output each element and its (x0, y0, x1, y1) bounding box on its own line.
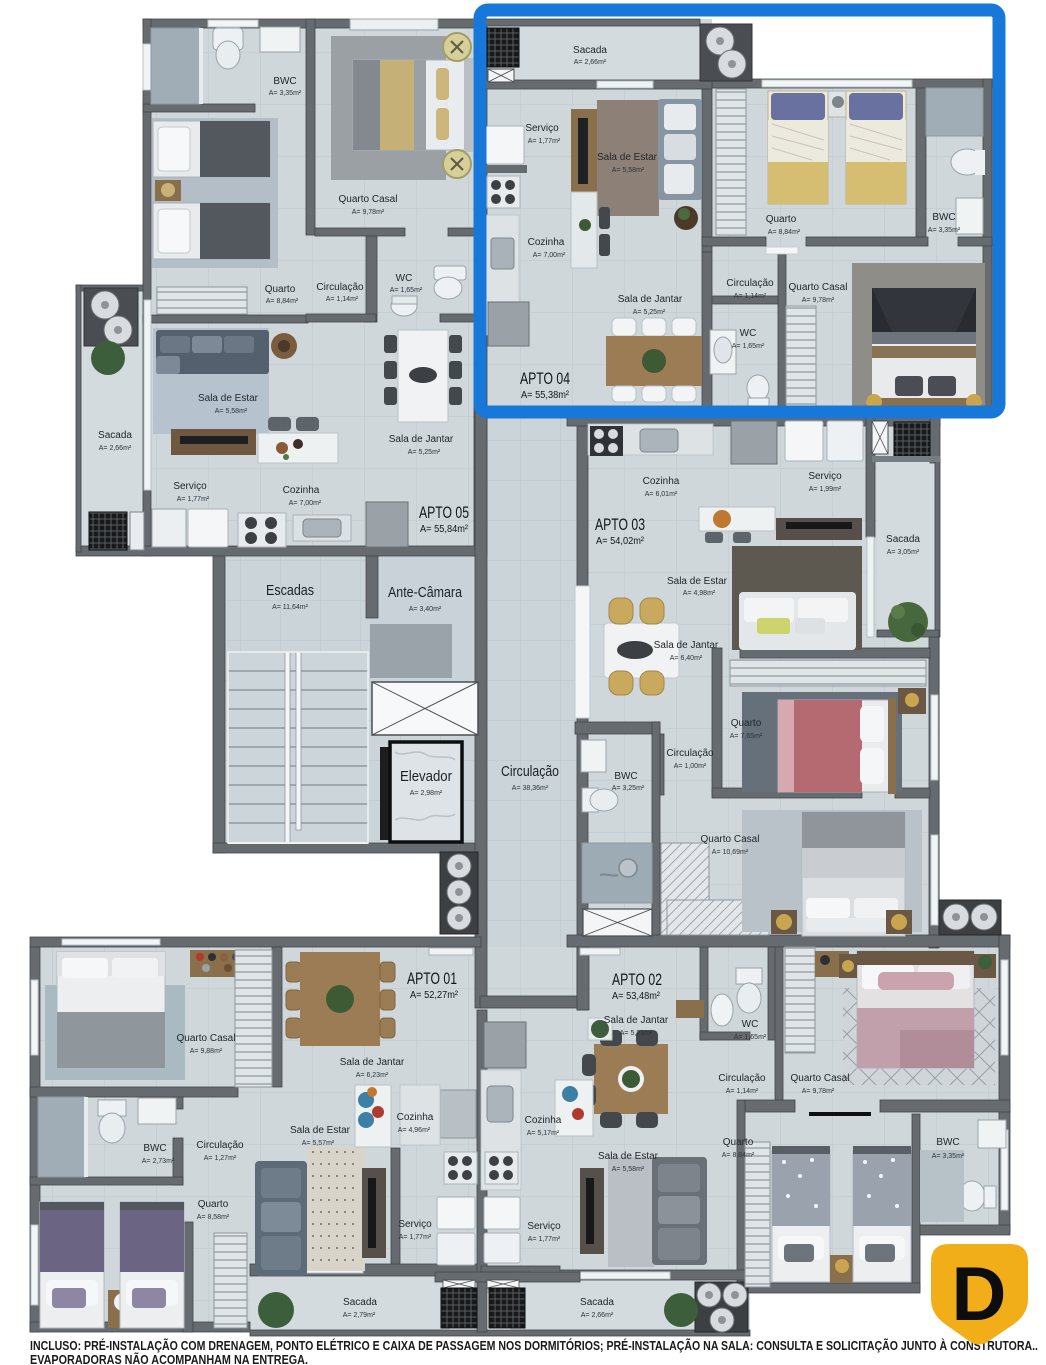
svg-text:A= 55,84m²: A= 55,84m² (420, 524, 469, 535)
svg-text:Cozinha: Cozinha (397, 1112, 434, 1123)
svg-text:A= 1,99m²: A= 1,99m² (809, 486, 842, 493)
svg-text:Quarto Casal: Quarto Casal (791, 1073, 850, 1084)
svg-text:Sala de Jantar: Sala de Jantar (389, 434, 454, 445)
svg-text:A= 8,84m²: A= 8,84m² (266, 298, 299, 305)
svg-text:WC: WC (740, 328, 757, 339)
svg-text:BWC: BWC (614, 771, 637, 782)
svg-text:Sala de Estar: Sala de Estar (290, 1125, 351, 1136)
svg-text:A= 5,57m²: A= 5,57m² (302, 1140, 335, 1147)
svg-text:Sacada: Sacada (886, 534, 920, 545)
svg-text:A= 4,96m²: A= 4,96m² (398, 1127, 431, 1134)
svg-text:Circulação: Circulação (718, 1073, 766, 1084)
svg-text:Circulação: Circulação (196, 1140, 244, 1151)
svg-text:A= 2,98m²: A= 2,98m² (410, 790, 443, 797)
svg-text:A= 5,58m²: A= 5,58m² (612, 167, 645, 174)
svg-text:A= 1,27m²: A= 1,27m² (204, 1155, 237, 1162)
svg-text:Sala de Jantar: Sala de Jantar (654, 640, 719, 651)
svg-text:A= 1,77m²: A= 1,77m² (399, 1234, 432, 1241)
svg-text:A= 3,35m²: A= 3,35m² (928, 227, 961, 234)
svg-text:A= 9,78m²: A= 9,78m² (352, 209, 385, 216)
svg-text:EVAPORADORAS NÃO ACOMPANHAM NA: EVAPORADORAS NÃO ACOMPANHAM NA ENTREGA. (30, 1352, 308, 1365)
svg-text:Sala de Estar: Sala de Estar (198, 393, 259, 404)
svg-text:A= 5,25m²: A= 5,25m² (633, 309, 666, 316)
svg-text:A= 55,38m²: A= 55,38m² (521, 390, 570, 401)
svg-text:Quarto Casal: Quarto Casal (701, 834, 760, 845)
svg-text:A= 1,00m²: A= 1,00m² (674, 763, 707, 770)
svg-text:WC: WC (396, 273, 413, 284)
svg-text:A= 6,23m²: A= 6,23m² (356, 1072, 389, 1079)
svg-text:A= 3,35m²: A= 3,35m² (269, 90, 302, 97)
svg-text:A= 7,00m²: A= 7,00m² (533, 252, 566, 259)
svg-text:A= 3,40m²: A= 3,40m² (409, 606, 442, 613)
svg-text:Quarto Casal: Quarto Casal (177, 1033, 236, 1044)
svg-text:A= 5,58m²: A= 5,58m² (215, 408, 248, 415)
svg-text:A= 1,14m²: A= 1,14m² (326, 296, 359, 303)
svg-text:Quarto: Quarto (766, 214, 797, 225)
svg-text:A= 1,77m²: A= 1,77m² (177, 496, 210, 503)
svg-text:Sala de Estar: Sala de Estar (667, 576, 728, 587)
svg-text:A= 1,14m²: A= 1,14m² (734, 293, 767, 300)
svg-text:APTO 03: APTO 03 (595, 515, 645, 534)
svg-text:Elevador: Elevador (400, 769, 452, 785)
svg-text:A= 1,14m²: A= 1,14m² (726, 1088, 759, 1095)
svg-text:A= 11,64m²: A= 11,64m² (272, 604, 309, 611)
svg-text:A= 2,66m²: A= 2,66m² (574, 59, 607, 66)
svg-text:BWC: BWC (273, 76, 296, 87)
svg-text:A= 38,36m²: A= 38,36m² (512, 785, 549, 792)
svg-text:Sala de Jantar: Sala de Jantar (340, 1057, 405, 1068)
svg-text:Cozinha: Cozinha (528, 237, 565, 248)
svg-text:Quarto: Quarto (731, 718, 762, 729)
svg-text:APTO 02: APTO 02 (612, 970, 662, 989)
svg-text:Ante-Câmara: Ante-Câmara (388, 585, 463, 601)
svg-text:A= 2,79m²: A= 2,79m² (343, 1312, 376, 1319)
svg-text:Sala de Jantar: Sala de Jantar (604, 1015, 669, 1026)
svg-text:A= 9,78m²: A= 9,78m² (802, 297, 835, 304)
svg-text:Sacada: Sacada (98, 430, 132, 441)
svg-text:Circulação: Circulação (501, 764, 559, 780)
svg-text:BWC: BWC (936, 1137, 959, 1148)
svg-text:Circulação: Circulação (726, 278, 774, 289)
svg-text:Serviço: Serviço (527, 1221, 561, 1232)
svg-text:A= 8,58m²: A= 8,58m² (197, 1214, 230, 1221)
svg-text:Circulação: Circulação (316, 282, 364, 293)
svg-text:A= 6,01m²: A= 6,01m² (645, 491, 678, 498)
svg-text:A= 1,77m²: A= 1,77m² (528, 138, 561, 145)
svg-text:A= 6,40m²: A= 6,40m² (670, 655, 703, 662)
svg-text:A= 1,65m²: A= 1,65m² (390, 287, 423, 294)
svg-text:A= 7,65m²: A= 7,65m² (730, 733, 763, 740)
svg-text:INCLUSO: PRÉ-INSTALAÇÃO COM DR: INCLUSO: PRÉ-INSTALAÇÃO COM DRENAGEM, PO… (30, 1338, 1038, 1353)
svg-text:Sala de Jantar: Sala de Jantar (618, 294, 683, 305)
svg-text:Quarto: Quarto (723, 1137, 754, 1148)
svg-text:Circulação: Circulação (666, 748, 714, 759)
svg-text:A= 2,73m²: A= 2,73m² (142, 1158, 175, 1165)
svg-text:Serviço: Serviço (808, 471, 842, 482)
svg-text:D: D (952, 1252, 1007, 1337)
svg-text:A= 9,78m²: A= 9,78m² (802, 1088, 835, 1095)
svg-text:A= 2,66m²: A= 2,66m² (581, 1312, 614, 1319)
svg-text:A= 3,35m²: A= 3,35m² (932, 1153, 965, 1160)
svg-text:BWC: BWC (932, 212, 955, 223)
svg-text:Quarto Casal: Quarto Casal (789, 282, 848, 293)
svg-text:Quarto: Quarto (198, 1199, 229, 1210)
svg-text:Serviço: Serviço (398, 1219, 432, 1230)
svg-text:Serviço: Serviço (173, 481, 207, 492)
svg-text:A= 8,84m²: A= 8,84m² (768, 229, 801, 236)
svg-text:A= 5,17m²: A= 5,17m² (527, 1130, 560, 1137)
svg-text:Cozinha: Cozinha (643, 476, 680, 487)
svg-text:A= 5,25m²: A= 5,25m² (620, 1030, 653, 1037)
svg-text:A= 53,48m²: A= 53,48m² (612, 991, 661, 1002)
svg-text:Sala de Estar: Sala de Estar (597, 152, 658, 163)
svg-text:WC: WC (742, 1019, 759, 1030)
svg-text:A= 5,25m²: A= 5,25m² (408, 449, 441, 456)
svg-text:A= 54,02m²: A= 54,02m² (596, 536, 645, 547)
svg-text:Sala de Estar: Sala de Estar (598, 1151, 659, 1162)
svg-text:A= 9,88m²: A= 9,88m² (190, 1048, 223, 1055)
svg-text:A= 1,65m²: A= 1,65m² (734, 1034, 767, 1041)
svg-text:A= 1,77m²: A= 1,77m² (528, 1236, 561, 1243)
svg-text:APTO 05: APTO 05 (419, 503, 469, 522)
svg-text:A= 3,05m²: A= 3,05m² (887, 549, 920, 556)
svg-text:A= 3,25m²: A= 3,25m² (612, 785, 645, 792)
svg-text:A= 1,65m²: A= 1,65m² (732, 343, 765, 350)
svg-text:Sacada: Sacada (573, 45, 607, 56)
svg-text:APTO 04: APTO 04 (520, 369, 570, 388)
svg-text:Quarto: Quarto (265, 284, 296, 295)
svg-text:A= 10,69m²: A= 10,69m² (712, 849, 749, 856)
svg-text:A= 5,58m²: A= 5,58m² (612, 1166, 645, 1173)
svg-text:Quarto Casal: Quarto Casal (339, 194, 398, 205)
svg-text:BWC: BWC (143, 1143, 166, 1154)
svg-text:A= 8,84m²: A= 8,84m² (722, 1152, 755, 1159)
svg-text:Escadas: Escadas (266, 583, 314, 599)
svg-text:A= 52,27m²: A= 52,27m² (410, 990, 459, 1001)
svg-text:A= 4,98m²: A= 4,98m² (683, 590, 716, 597)
svg-text:A= 7,00m²: A= 7,00m² (289, 500, 322, 507)
svg-text:Cozinha: Cozinha (283, 485, 320, 496)
svg-text:Cozinha: Cozinha (525, 1115, 562, 1126)
svg-text:Serviço: Serviço (525, 123, 559, 134)
svg-text:A= 2,66m²: A= 2,66m² (99, 445, 132, 452)
svg-text:APTO 01: APTO 01 (407, 969, 457, 988)
svg-text:Sacada: Sacada (580, 1297, 614, 1308)
svg-text:Sacada: Sacada (343, 1297, 377, 1308)
